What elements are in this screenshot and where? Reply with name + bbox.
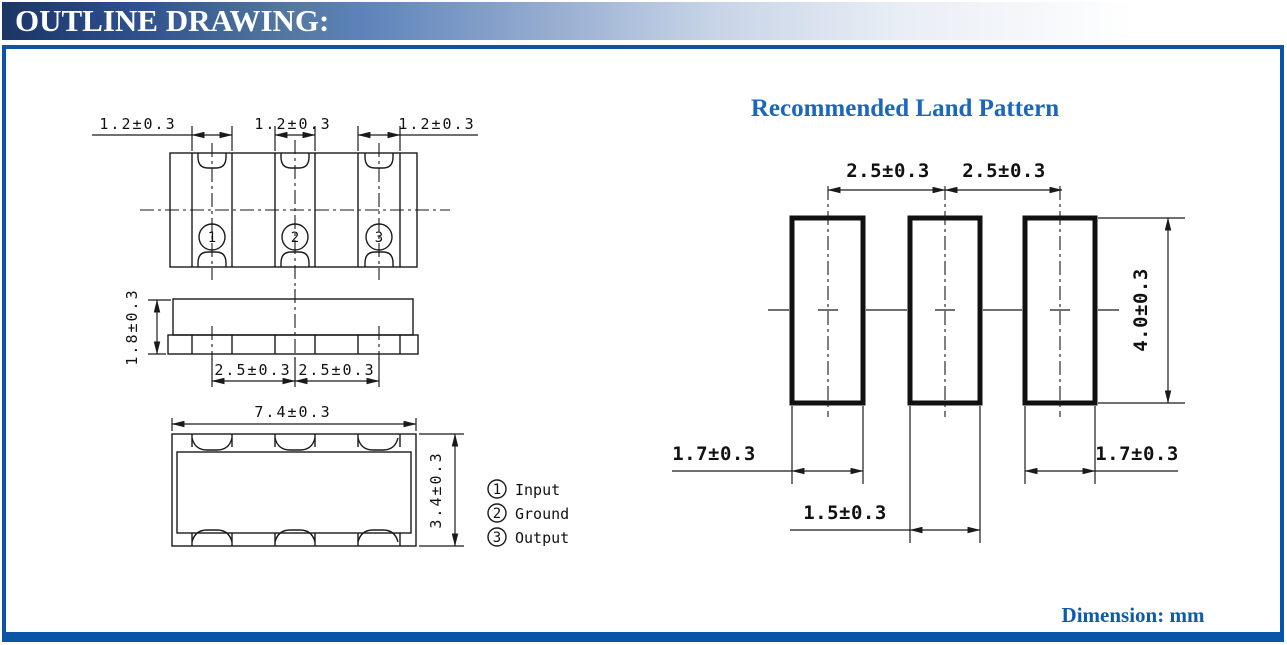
dim-pad3-width: 1.2±0.3 bbox=[398, 115, 475, 133]
legend-2-label: Ground bbox=[515, 505, 569, 523]
dim-land-pad2-width: 1.5±0.3 bbox=[803, 502, 887, 524]
side-view-pitch-dimensions: 2.5±0.3 2.5±0.3 bbox=[212, 358, 379, 387]
outline-drawing-canvas: 1 2 3 1.2±0.3 1.2±0.3 1.2±0.3 bbox=[0, 0, 1287, 645]
legend-item-input: 1 Input bbox=[488, 480, 560, 499]
land-pad2-width-dimension: 1.5±0.3 bbox=[790, 406, 980, 543]
pad-1-number: 1 bbox=[208, 230, 216, 246]
dim-land-pad1-width: 1.7±0.3 bbox=[672, 443, 756, 465]
dim-body-width: 7.4±0.3 bbox=[254, 403, 331, 421]
bottom-view: 7.4±0.3 3.4±0.3 bbox=[172, 403, 464, 546]
top-view: 1 2 3 1.2±0.3 1.2±0.3 1.2±0.3 bbox=[92, 115, 478, 292]
bottom-view-depth-dimension: 3.4±0.3 bbox=[419, 434, 464, 546]
pad-3-number: 3 bbox=[375, 230, 383, 246]
legend-3-label: Output bbox=[515, 529, 569, 547]
top-view-dimensions: 1.2±0.3 1.2±0.3 1.2±0.3 bbox=[92, 115, 478, 151]
dimension-unit-note: Dimension: mm bbox=[1048, 603, 1218, 628]
land-pattern-title: Recommended Land Pattern bbox=[751, 95, 1059, 122]
land-pitch-dimensions: 2.5±0.3 2.5±0.3 bbox=[828, 160, 1062, 190]
pin-legend: 1 Input 2 Ground 3 Output bbox=[488, 480, 569, 547]
dim-land-pad3-width: 1.7±0.3 bbox=[1095, 443, 1179, 465]
dim-pitch-1: 2.5±0.3 bbox=[214, 361, 291, 379]
side-view: 1.8±0.3 2.5±0.3 2.5±0.3 bbox=[123, 288, 418, 387]
dim-land-pad-height: 4.0±0.3 bbox=[1130, 268, 1152, 352]
land-pad1-width-dimension: 1.7±0.3 bbox=[672, 406, 863, 484]
legend-2-number: 2 bbox=[493, 506, 501, 522]
dim-land-pitch-2: 2.5±0.3 bbox=[962, 160, 1046, 182]
pad-2-number: 2 bbox=[291, 230, 299, 246]
dim-pitch-2: 2.5±0.3 bbox=[298, 361, 375, 379]
bottom-view-width-dimension: 7.4±0.3 bbox=[172, 403, 416, 431]
side-view-height-dimension: 1.8±0.3 bbox=[123, 288, 171, 365]
dim-land-pitch-1: 2.5±0.3 bbox=[846, 160, 930, 182]
legend-item-output: 3 Output bbox=[488, 528, 569, 547]
legend-3-number: 3 bbox=[493, 530, 501, 546]
legend-1-number: 1 bbox=[493, 482, 501, 498]
land-pattern: Recommended Land Pattern 2.5±0.3 2.5±0.3 bbox=[672, 95, 1185, 543]
dim-body-height: 1.8±0.3 bbox=[123, 288, 141, 365]
dim-body-depth: 3.4±0.3 bbox=[427, 451, 445, 528]
dim-pad1-width: 1.2±0.3 bbox=[99, 115, 176, 133]
land-pad3-width-dimension: 1.7±0.3 bbox=[1025, 406, 1179, 484]
legend-item-ground: 2 Ground bbox=[488, 504, 569, 523]
dim-pad2-width: 1.2±0.3 bbox=[254, 115, 331, 133]
legend-1-label: Input bbox=[515, 481, 560, 499]
